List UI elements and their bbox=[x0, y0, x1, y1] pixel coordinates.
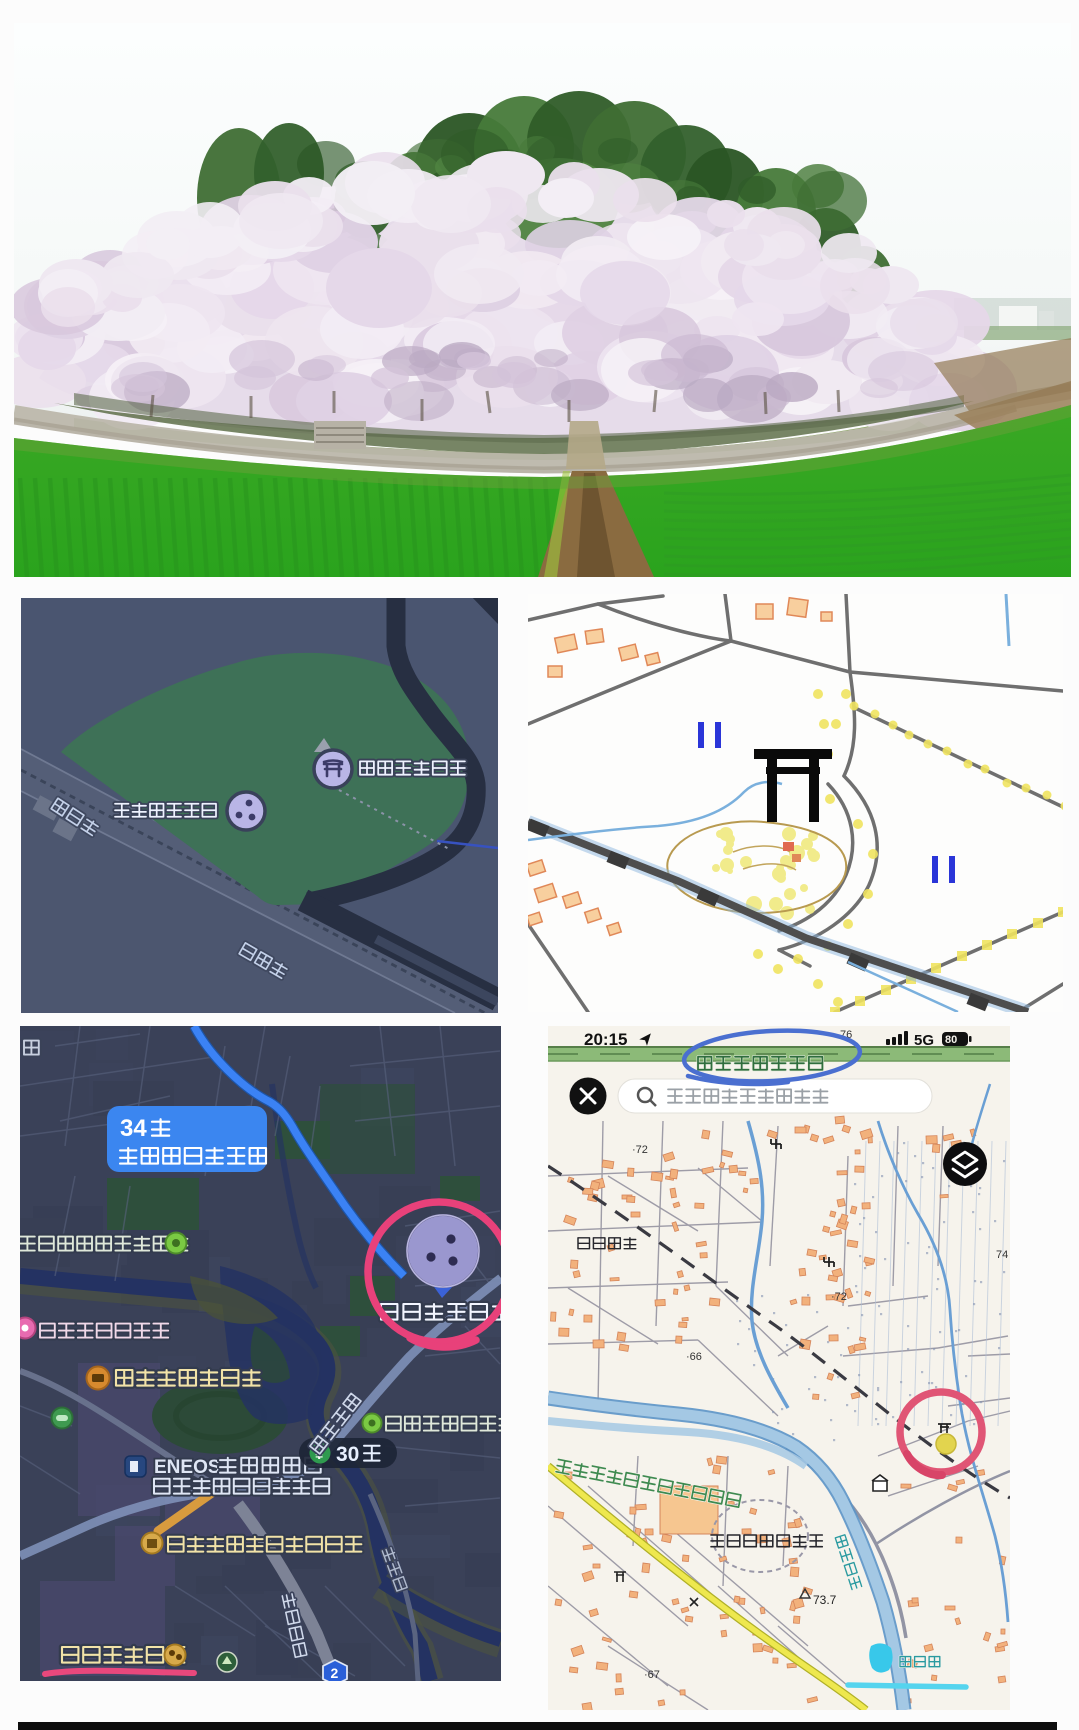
svg-text:2: 2 bbox=[331, 1665, 339, 1681]
svg-text:·66: ·66 bbox=[686, 1351, 702, 1363]
svg-text:34: 34 bbox=[120, 1115, 147, 1142]
svg-text:74: 74 bbox=[996, 1249, 1008, 1261]
svg-text:5G: 5G bbox=[914, 1032, 934, 1049]
svg-text:·72: ·72 bbox=[632, 1144, 648, 1156]
svg-text:·67: ·67 bbox=[644, 1669, 660, 1681]
svg-text:73.7: 73.7 bbox=[813, 1593, 837, 1607]
svg-text:·72: ·72 bbox=[831, 1291, 847, 1303]
svg-text:ENEOS: ENEOS bbox=[154, 1457, 221, 1478]
svg-text:80: 80 bbox=[945, 1034, 957, 1046]
svg-text:20:15: 20:15 bbox=[584, 1030, 627, 1049]
svg-text:30: 30 bbox=[336, 1443, 359, 1466]
